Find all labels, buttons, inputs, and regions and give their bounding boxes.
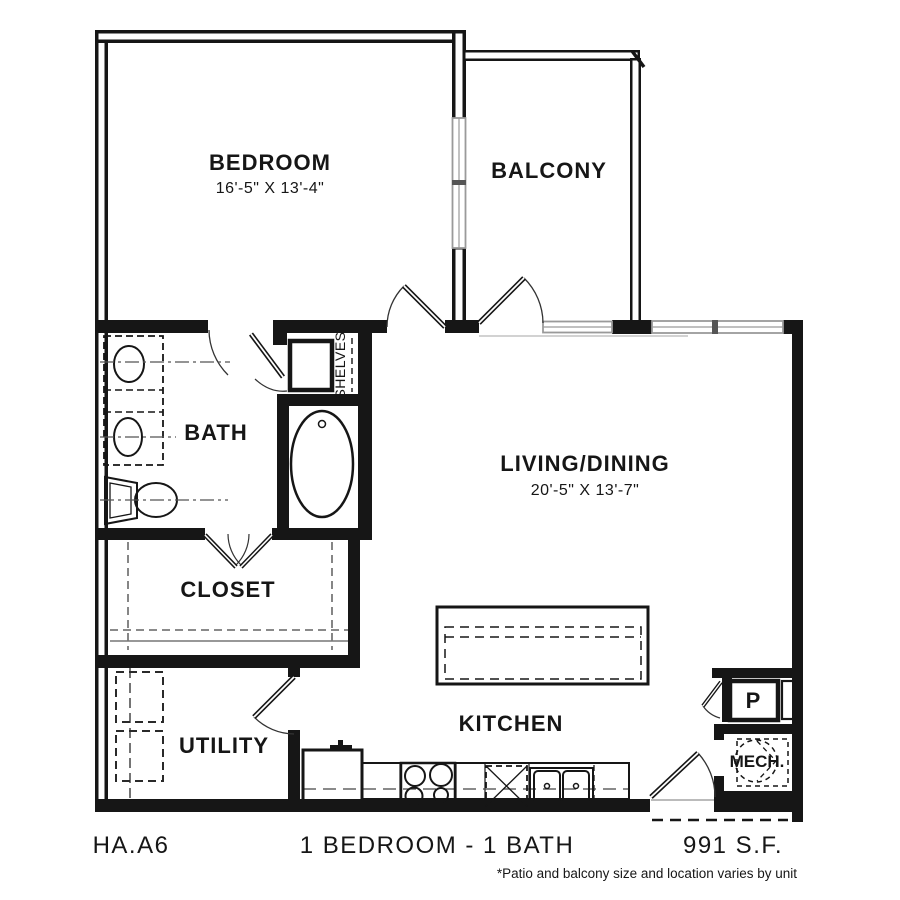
room-labels: BEDROOM 16'-5" X 13'-4" BALCONY BATH SHE… xyxy=(179,150,784,771)
bath-label: BATH xyxy=(184,420,247,445)
tub-drain xyxy=(319,421,326,428)
refrigerator xyxy=(303,740,362,808)
bedroom-dims: 16'-5" X 13'-4" xyxy=(216,180,325,197)
toilet xyxy=(100,477,228,524)
shelves-label: SHELVES xyxy=(332,331,348,398)
plan-code: HA.A6 xyxy=(93,832,170,859)
utility-label: UTILITY xyxy=(179,733,269,758)
kitchen-label: KITCHEN xyxy=(459,711,564,736)
balcony-walls xyxy=(463,50,644,324)
pantry-door xyxy=(703,682,721,718)
bedroom-door xyxy=(387,286,445,327)
closet-double-doors xyxy=(205,534,272,567)
bedroom-window xyxy=(452,118,466,248)
linen-door-arc xyxy=(255,379,287,391)
plan-area: 991 S.F. xyxy=(683,832,783,859)
living-dining-label: LIVING/DINING xyxy=(500,451,669,476)
bedroom-label: BEDROOM xyxy=(209,150,331,175)
pantry-label: P xyxy=(746,688,761,713)
sink-1 xyxy=(114,346,144,382)
bathtub xyxy=(291,411,353,517)
closet-label: CLOSET xyxy=(180,577,275,602)
plan-type: 1 BEDROOM - 1 BATH xyxy=(300,832,575,859)
footer: HA.A6 1 BEDROOM - 1 BATH 991 S.F. *Patio… xyxy=(93,832,798,881)
entry-door xyxy=(651,753,715,800)
floor-plan-drawing: BEDROOM 16'-5" X 13'-4" BALCONY BATH SHE… xyxy=(0,0,900,900)
utility-appliances xyxy=(116,668,163,798)
living-window-1 xyxy=(543,322,612,333)
washer xyxy=(116,672,163,722)
plan-footnote: *Patio and balcony size and location var… xyxy=(497,866,797,881)
utility-door xyxy=(254,677,294,734)
living-dining-dims: 20'-5" X 13'-7" xyxy=(531,482,640,499)
mech-label: MECH. xyxy=(730,752,785,771)
linen-cabinet xyxy=(290,341,332,390)
kitchen-island xyxy=(437,607,648,684)
balcony-label: BALCONY xyxy=(491,158,607,183)
dryer xyxy=(116,731,163,781)
floor-plan-page: BEDROOM 16'-5" X 13'-4" BALCONY BATH SHE… xyxy=(0,0,900,900)
vanity xyxy=(100,336,230,465)
living-window-2 xyxy=(652,320,783,334)
